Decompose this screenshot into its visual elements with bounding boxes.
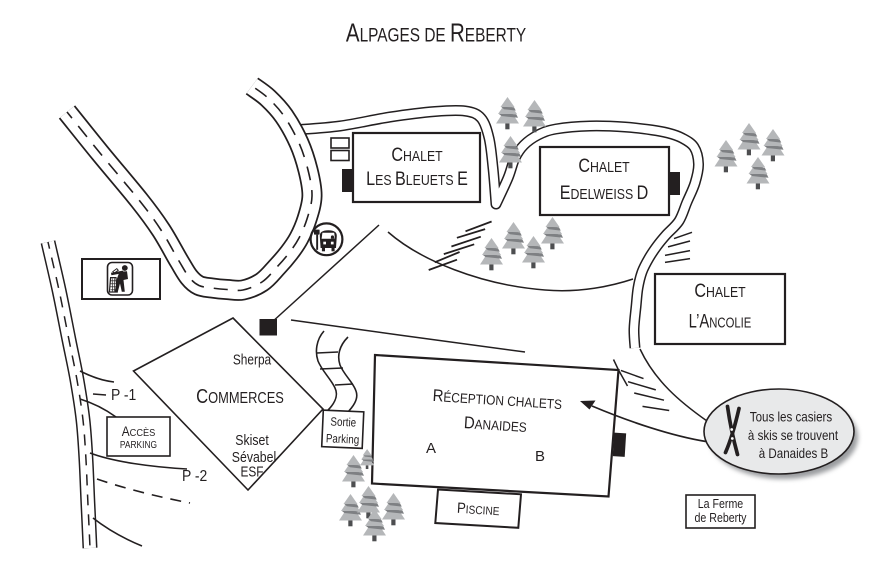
svg-text:La Ferme: La Ferme — [698, 497, 743, 511]
svg-text:PARKING: PARKING — [120, 439, 157, 451]
svg-text:Tous les casiers: Tous les casiers — [750, 409, 832, 425]
svg-text:B: B — [535, 448, 545, 465]
svg-text:Parking: Parking — [326, 432, 360, 447]
svg-text:Skiset: Skiset — [235, 432, 269, 448]
svg-text:Sherpa: Sherpa — [233, 351, 272, 367]
svg-text:Sortie: Sortie — [330, 416, 356, 430]
svg-text:à Danaides B: à Danaides B — [759, 445, 829, 461]
svg-text:A: A — [426, 440, 436, 457]
svg-text:à skis se trouvent: à skis se trouvent — [748, 427, 839, 443]
svg-text:L’ANCOLIE: L’ANCOLIE — [689, 311, 752, 332]
svg-text:P -1: P -1 — [111, 387, 136, 404]
svg-text:de Reberty: de Reberty — [695, 511, 747, 525]
svg-text:ESF: ESF — [240, 463, 263, 480]
svg-text:P -2: P -2 — [182, 468, 207, 485]
